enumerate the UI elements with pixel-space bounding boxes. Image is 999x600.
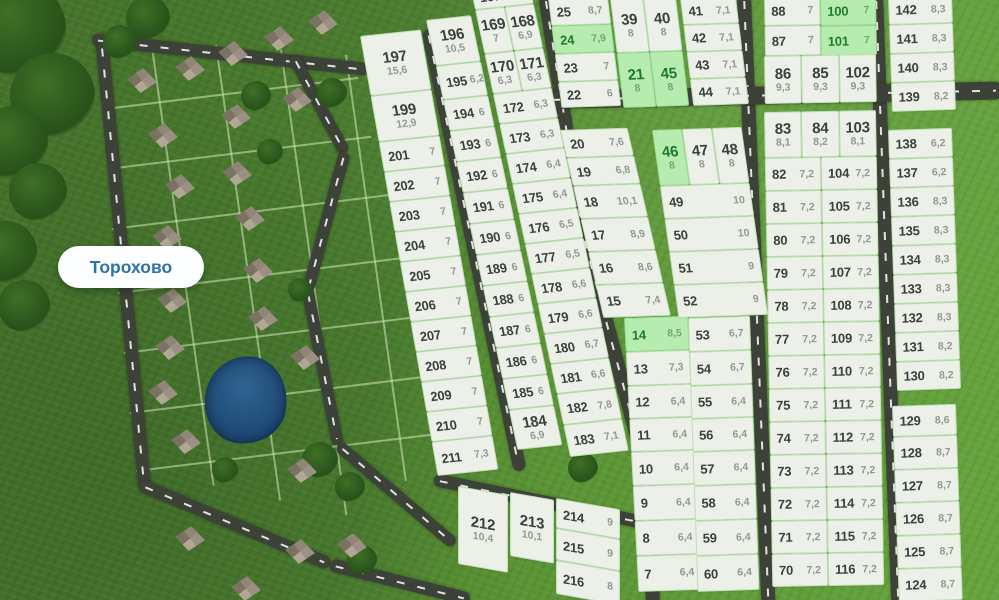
plot-area: 7,2 [800, 201, 815, 213]
plot-area: 7 [476, 415, 484, 428]
plot-area: 7 [455, 295, 463, 308]
plot-100[interactable]: 1007 [820, 0, 877, 26]
plot-135[interactable]: 1358,3 [891, 215, 956, 246]
plot-area: 10 [732, 194, 745, 206]
plot-41[interactable]: 417,1 [680, 0, 739, 25]
plot-row: 106,4 [631, 450, 697, 486]
plot-132[interactable]: 1328,3 [894, 302, 959, 333]
plot-number: 19 [575, 164, 592, 179]
plot-number: 71 [778, 530, 792, 545]
plot-area: 12,9 [395, 117, 417, 131]
plot-row: 417,1 [680, 0, 739, 25]
plot-area: 6 [606, 87, 613, 99]
plot-105[interactable]: 1057,2 [821, 189, 878, 223]
plot-86[interactable]: 869,3 [764, 55, 802, 104]
plot-area: 6 [477, 105, 485, 118]
plot-area: 6,3 [526, 71, 543, 85]
plot-number: 41 [688, 3, 704, 18]
plot-area: 6 [524, 322, 532, 335]
plot-area: 8,3 [931, 3, 946, 16]
plot-row: 1278,7 [894, 468, 959, 503]
plot-133[interactable]: 1338,3 [893, 273, 958, 304]
plot-106[interactable]: 1067,2 [822, 222, 879, 256]
plot-49[interactable]: 4910 [660, 183, 754, 219]
plot-number: 190 [478, 229, 502, 246]
plot-row: 576,4 [693, 450, 756, 486]
plot-number: 133 [900, 281, 922, 297]
plot-212[interactable]: 21210,4 [458, 486, 508, 573]
plot-number: 207 [419, 327, 442, 344]
plot-area: 6,6 [571, 277, 588, 291]
plot-area: 7,1 [722, 58, 738, 71]
plot-number: 18 [582, 194, 599, 209]
plot-196[interactable]: 19610,5 [426, 15, 481, 66]
plot-number: 10 [639, 461, 654, 476]
plot-40[interactable]: 408 [643, 0, 683, 52]
plot-191[interactable]: 1916 [463, 188, 515, 224]
plot-79[interactable]: 797,2 [767, 256, 824, 290]
plot-number: 215 [563, 538, 584, 557]
plot-81[interactable]: 817,2 [765, 190, 822, 224]
plot-139[interactable]: 1398,2 [891, 81, 956, 112]
plot-number: 24 [559, 32, 575, 47]
plot-area: 8,7 [936, 446, 951, 459]
plot-area: 6,2 [932, 166, 947, 179]
plot-area: 7 [429, 145, 437, 158]
plot-23[interactable]: 237 [555, 52, 618, 82]
plot-213[interactable]: 21310,1 [510, 492, 554, 564]
plot-102[interactable]: 1029,3 [839, 54, 877, 103]
plot-column-R1b: 838,1848,21038,1827,21047,2817,21057,280… [764, 110, 884, 587]
plot-43[interactable]: 437,1 [687, 50, 746, 79]
plot-7[interactable]: 76,4 [636, 554, 702, 592]
plot-76[interactable]: 767,2 [768, 355, 825, 389]
plot-row: 1318,2 [895, 331, 960, 362]
plot-number: 211 [440, 449, 463, 466]
plot-number: 75 [776, 398, 790, 413]
plot-140[interactable]: 1408,3 [890, 52, 955, 83]
plot-60[interactable]: 606,4 [696, 554, 759, 592]
plot-number: 25 [556, 4, 572, 19]
plot-number: 13 [633, 361, 648, 376]
plot-80[interactable]: 807,2 [766, 223, 823, 257]
plot-24[interactable]: 247,9 [551, 24, 614, 54]
plot-20[interactable]: 207,6 [560, 128, 634, 158]
plot-area: 6,7 [583, 337, 600, 351]
plot-number: 131 [902, 339, 924, 355]
plot-108[interactable]: 1087,2 [823, 288, 880, 322]
plot-area: 6,4 [736, 531, 751, 544]
plot-number: 174 [514, 159, 538, 176]
plot-130[interactable]: 1308,2 [896, 360, 961, 391]
plot-area: 6 [530, 353, 538, 366]
plot-number: 109 [831, 331, 852, 346]
plot-71[interactable]: 717,2 [771, 520, 828, 554]
plot-78[interactable]: 787,2 [767, 289, 824, 323]
plot-75[interactable]: 757,2 [769, 388, 826, 422]
plot-number: 12 [635, 394, 650, 409]
plot-44[interactable]: 447,1 [690, 77, 749, 106]
plot-number: 142 [895, 2, 917, 18]
plot-number: 127 [902, 478, 924, 494]
plot-number: 129 [899, 413, 921, 429]
plot-number: 11 [637, 427, 651, 442]
plot-area: 6,2 [931, 137, 946, 150]
plot-area: 7,2 [859, 398, 874, 410]
plot-area: 6,7 [730, 361, 745, 374]
plot-area: 8,7 [938, 512, 953, 525]
plot-area: 6,3 [497, 74, 514, 88]
plot-area: 7,2 [803, 366, 818, 378]
plot-142[interactable]: 1428,3 [888, 0, 953, 25]
plot-number: 60 [704, 566, 719, 581]
plot-70[interactable]: 707,2 [772, 553, 829, 587]
plot-16[interactable]: 168,6 [588, 250, 663, 285]
plot-row: 237 [555, 52, 618, 82]
plot-9[interactable]: 96,4 [633, 484, 699, 521]
plot-183[interactable]: 1837,1 [563, 419, 628, 457]
plot-row: 437,1 [687, 50, 746, 79]
plot-row: 1007 [820, 0, 877, 26]
plot-number: 181 [559, 369, 583, 386]
plot-number: 115 [834, 529, 855, 544]
plot-column-R2a: 1428,31418,31408,31398,2 [888, 0, 956, 112]
plot-area: 7,2 [862, 530, 877, 542]
plot-row: 1348,3 [892, 244, 957, 275]
plot-82[interactable]: 827,2 [765, 157, 822, 191]
plot-126[interactable]: 1268,7 [895, 501, 960, 536]
plot-number: 23 [563, 60, 579, 75]
plot-number: 173 [508, 129, 532, 146]
plot-number: 87 [772, 33, 786, 48]
plot-127[interactable]: 1278,7 [894, 468, 959, 503]
plot-row: 1956,2 [436, 61, 488, 100]
plot-row: 21310,1 [510, 492, 554, 564]
plot-area: 7,1 [718, 31, 734, 44]
plot-number: 132 [901, 310, 923, 326]
plot-area: 7 [863, 4, 869, 16]
plot-row: 258,7 [548, 0, 611, 26]
plot-25[interactable]: 258,7 [548, 0, 611, 26]
plot-row: 1428,3 [888, 0, 953, 25]
plot-area: 7,2 [858, 332, 873, 344]
plot-199[interactable]: 19912,9 [371, 89, 440, 142]
plot-14[interactable]: 148,5 [624, 316, 690, 352]
plot-area: 10 [737, 227, 750, 239]
plot-number: 76 [775, 365, 789, 380]
plot-area: 6 [537, 384, 545, 397]
plot-area: 6,4 [735, 496, 750, 509]
plot-211[interactable]: 2117,3 [432, 435, 499, 476]
plot-row: 817,21057,2 [765, 189, 878, 224]
plot-8[interactable]: 86,4 [635, 519, 701, 556]
plot-area: 7 [439, 205, 447, 218]
plot-row: 21210,4 [458, 486, 508, 573]
plot-112[interactable]: 1127,2 [825, 420, 882, 454]
plot-column-Bt2: 21310,1 [510, 492, 554, 564]
plot-row: 877 [765, 25, 822, 56]
plot-area: 10,4 [473, 530, 493, 546]
plot-number: 111 [832, 397, 852, 412]
plot-row: 1837,1 [563, 419, 628, 457]
plot-109[interactable]: 1097,2 [824, 321, 881, 355]
plot-87[interactable]: 877 [765, 25, 822, 56]
plot-18[interactable]: 1810,1 [573, 184, 648, 219]
plot-area: 8,9 [629, 227, 646, 240]
plot-110[interactable]: 1107,2 [824, 354, 881, 388]
plot-137[interactable]: 1376,2 [889, 157, 954, 188]
plot-number: 7 [644, 566, 652, 581]
plot-125[interactable]: 1258,7 [897, 534, 962, 569]
plot-column-M1t: 258,7247,9237226 [548, 0, 621, 108]
plot-136[interactable]: 1368,3 [890, 186, 955, 217]
plot-number: 81 [773, 200, 787, 215]
plot-197[interactable]: 19715,6 [360, 29, 431, 96]
plot-141[interactable]: 1418,3 [889, 23, 954, 54]
plot-row: 887 [764, 0, 821, 26]
plot-row: 1328,3 [894, 302, 959, 333]
plot-195[interactable]: 1956,2 [436, 61, 488, 100]
plot-74[interactable]: 747,2 [769, 421, 826, 455]
plot-map-canvas: 19715,619912,920172027203720472057206720… [0, 0, 999, 600]
plot-number: 201 [387, 147, 410, 164]
plot-number: 74 [777, 431, 791, 446]
plot-58[interactable]: 586,4 [694, 484, 757, 521]
plot-number: 178 [540, 279, 564, 296]
plot-area: 7,2 [855, 167, 870, 179]
plot-number: 82 [772, 167, 786, 182]
plot-row: 1258,7 [897, 534, 962, 569]
plot-number: 56 [699, 427, 714, 442]
plot-area: 7,2 [857, 233, 872, 245]
plot-52[interactable]: 529 [674, 282, 768, 318]
plot-128[interactable]: 1288,7 [893, 435, 958, 470]
plot-number: 51 [677, 260, 693, 275]
plot-194[interactable]: 1946 [443, 95, 495, 131]
plot-area: 7,3 [669, 361, 684, 374]
plot-13[interactable]: 137,3 [626, 350, 692, 386]
plot-11[interactable]: 116,4 [629, 417, 695, 452]
plot-188[interactable]: 1886 [483, 281, 535, 317]
plot-55[interactable]: 556,4 [690, 384, 753, 419]
plot-190[interactable]: 1906 [469, 219, 521, 255]
place-label-text: Торохово [90, 257, 172, 278]
plot-area: 6,3 [539, 127, 556, 141]
plot-42[interactable]: 427,1 [683, 23, 742, 52]
plot-row: 1308,2 [896, 360, 961, 391]
plot-51[interactable]: 519 [669, 249, 763, 285]
plot-area: 9,3 [813, 81, 828, 93]
plot-116[interactable]: 1167,2 [828, 552, 885, 586]
plot-104[interactable]: 1047,2 [821, 156, 878, 190]
plot-row: 767,21107,2 [768, 354, 881, 389]
plot-85[interactable]: 859,3 [801, 55, 839, 104]
plot-area: 6 [517, 291, 525, 304]
plot-number: 72 [778, 497, 792, 512]
plot-114[interactable]: 1147,2 [827, 486, 884, 520]
plot-101[interactable]: 1017 [821, 25, 878, 56]
plot-189[interactable]: 1896 [476, 250, 528, 286]
plot-number: 78 [774, 299, 788, 314]
plot-row: 787,21087,2 [767, 288, 880, 323]
plot-area: 7,1 [725, 85, 741, 98]
plot-row: 869,3859,31029,3 [764, 54, 877, 104]
plot-number: 139 [898, 89, 920, 105]
plot-area: 8,1 [850, 135, 865, 147]
plot-17[interactable]: 178,9 [581, 217, 656, 252]
plot-129[interactable]: 1298,6 [892, 404, 957, 437]
plot-131[interactable]: 1318,2 [895, 331, 960, 362]
plot-54[interactable]: 546,7 [689, 350, 752, 386]
plot-area: 8,7 [940, 578, 955, 591]
plot-number: 185 [511, 384, 535, 401]
plot-area: 7,4 [644, 293, 661, 306]
plot-area: 7,2 [801, 234, 816, 246]
plot-number: 137 [896, 165, 918, 181]
plot-row: 1876 [489, 312, 541, 348]
plot-number: 39 [620, 11, 638, 29]
plot-area: 9 [747, 260, 755, 272]
plot-area: 8,5 [667, 327, 682, 340]
plot-192[interactable]: 1926 [456, 157, 508, 193]
plot-row: 1368,3 [890, 186, 955, 217]
plot-113[interactable]: 1137,2 [826, 453, 883, 487]
plot-row: 519 [669, 249, 763, 285]
plot-area: 8,2 [939, 369, 954, 382]
plot-area: 7,2 [801, 267, 816, 279]
plot-number: 182 [565, 399, 589, 416]
plot-area: 8 [668, 159, 676, 171]
plot-area: 7 [807, 4, 813, 16]
plot-column-M2t: 398408218458 [610, 0, 689, 108]
plot-area: 6,8 [614, 164, 631, 177]
plot-number: 187 [498, 322, 522, 339]
plot-area: 9,3 [850, 80, 865, 92]
plot-84[interactable]: 848,2 [801, 111, 839, 158]
plot-row: 226 [558, 80, 621, 108]
plot-187[interactable]: 1876 [489, 312, 541, 348]
plot-number: 85 [812, 65, 829, 82]
plot-53[interactable]: 536,7 [688, 316, 751, 352]
plot-50[interactable]: 5010 [665, 216, 759, 252]
plot-row: 1846,9 [509, 405, 562, 450]
plot-88[interactable]: 887 [764, 0, 821, 26]
plot-107[interactable]: 1077,2 [823, 255, 880, 289]
plot-area: 7,2 [805, 498, 820, 510]
plot-number: 58 [701, 495, 716, 510]
plot-row: 1856 [502, 374, 554, 410]
plot-column-M3t: 417,1427,1437,1447,1 [680, 0, 749, 106]
plot-area: 6,3 [532, 97, 549, 111]
plot-184[interactable]: 1846,9 [509, 405, 562, 450]
plot-row: 1418,3 [889, 23, 954, 54]
plot-row: 2117,3 [432, 435, 499, 476]
plot-number: 59 [702, 530, 717, 545]
plot-row: 168,6 [588, 250, 663, 285]
plot-area: 7,3 [473, 447, 489, 461]
plot-area: 7,2 [806, 531, 821, 543]
plot-number: 8 [642, 531, 650, 546]
plot-number: 128 [900, 445, 922, 461]
plot-row: 717,21157,2 [771, 519, 884, 554]
plot-number: 176 [527, 219, 551, 236]
plot-138[interactable]: 1386,2 [888, 128, 953, 159]
plot-row: 247,9 [551, 24, 614, 54]
plot-area: 7,6 [608, 136, 625, 149]
plot-77[interactable]: 777,2 [768, 322, 825, 356]
plot-83[interactable]: 838,1 [764, 111, 802, 158]
plot-115[interactable]: 1157,2 [827, 519, 884, 553]
plot-22[interactable]: 226 [558, 80, 621, 108]
plot-number: 14 [631, 327, 646, 342]
plot-number: 84 [812, 120, 829, 137]
plot-number: 83 [775, 121, 792, 138]
plot-column-M2b1: 46847848849105010519529 [652, 127, 768, 318]
plot-111[interactable]: 1117,2 [825, 387, 882, 421]
plot-area: 7 [466, 355, 474, 368]
plot-number: 102 [845, 64, 870, 81]
plot-57[interactable]: 576,4 [693, 450, 756, 486]
plot-area: 10,1 [522, 528, 542, 544]
plot-row: 1376,2 [889, 157, 954, 188]
plot-number: 167 [478, 0, 502, 5]
plot-number: 179 [546, 309, 570, 326]
plot-73[interactable]: 737,2 [770, 454, 827, 488]
plot-area: 8,7 [587, 4, 603, 17]
plot-area: 6,4 [670, 395, 685, 408]
plot-row: 606,4 [696, 554, 759, 592]
plot-124[interactable]: 1248,7 [898, 567, 963, 600]
plot-56[interactable]: 566,4 [692, 417, 755, 452]
plot-number: 206 [413, 297, 436, 314]
plot-number: 16 [597, 260, 614, 275]
plot-area: 6,7 [729, 327, 744, 340]
plot-number: 21 [627, 66, 645, 84]
plot-134[interactable]: 1348,3 [892, 244, 957, 275]
plot-row: 398408 [610, 0, 682, 53]
plot-row: 777,21097,2 [768, 321, 881, 356]
plot-number: 189 [484, 260, 508, 277]
plot-59[interactable]: 596,4 [695, 519, 758, 556]
plot-72[interactable]: 727,2 [771, 487, 828, 521]
plot-row: 427,1 [683, 23, 742, 52]
plot-number: 108 [830, 298, 851, 313]
plot-area: 6,4 [679, 566, 694, 579]
plot-column-R1tB: 10071017 [820, 0, 877, 56]
plot-186[interactable]: 1866 [496, 343, 548, 379]
plot-number: 107 [830, 265, 851, 280]
plot-185[interactable]: 1856 [502, 374, 554, 410]
plot-number: 88 [771, 3, 785, 18]
plot-area: 6,5 [558, 217, 575, 231]
plot-19[interactable]: 196,8 [566, 156, 640, 186]
plot-row: 1017 [821, 25, 878, 56]
plot-45[interactable]: 458 [650, 51, 690, 107]
plot-12[interactable]: 126,4 [628, 384, 694, 419]
plot-area: 7,2 [860, 431, 875, 443]
plot-area: 6,4 [552, 187, 569, 201]
plot-15[interactable]: 157,4 [596, 283, 671, 318]
plot-10[interactable]: 106,4 [631, 450, 697, 486]
plot-area: 7,2 [804, 432, 819, 444]
plot-number: 192 [465, 167, 489, 184]
plot-area: 7 [450, 265, 458, 278]
plot-row: 1866 [496, 343, 548, 379]
plot-number: 54 [697, 361, 712, 376]
plot-103[interactable]: 1038,1 [839, 110, 877, 157]
plot-193[interactable]: 1936 [450, 126, 502, 162]
plot-number: 9 [640, 496, 648, 511]
